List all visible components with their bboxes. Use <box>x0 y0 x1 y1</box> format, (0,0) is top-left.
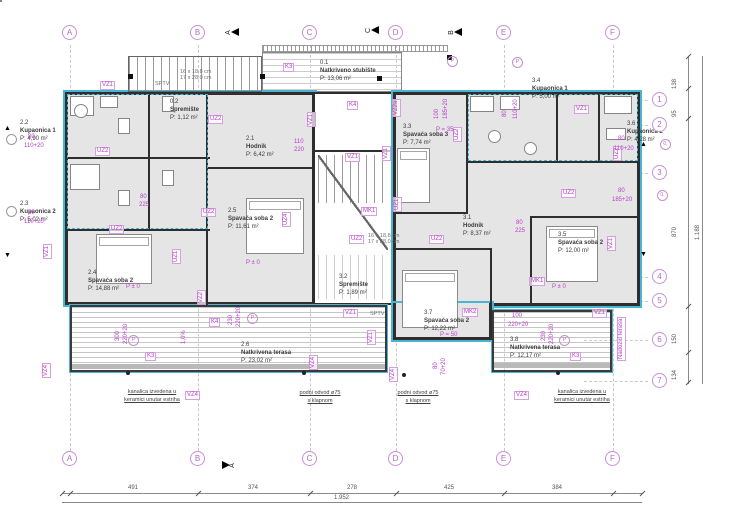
room-number: 2.4 <box>88 270 133 278</box>
grid-bubble-bottom-B: B <box>190 451 205 466</box>
wall <box>393 248 492 250</box>
tag-k3: K3 <box>283 63 294 72</box>
column-post <box>128 74 133 79</box>
dim-text: 80 <box>502 110 509 117</box>
room-name: Hodnik <box>463 223 491 231</box>
room-area: P: 7,74 m² <box>403 140 448 148</box>
toilet-fixture <box>118 118 130 134</box>
bed <box>397 148 430 203</box>
room-area: P: 12,00 m² <box>558 248 603 256</box>
dim-value: 491 <box>128 485 138 492</box>
floor-plan-canvas: AABBCCDDEEFF12345672.2Kupaonica 1P: 4,90… <box>0 0 748 512</box>
annotation-gray: 17 x 28,0 cm <box>368 239 400 245</box>
dim-tick <box>640 491 646 497</box>
dim-value: 138 <box>672 79 679 89</box>
dim-tick <box>686 380 692 386</box>
tag-vz1: VZ1 <box>343 309 358 318</box>
fan-symbol <box>74 104 88 118</box>
plan-note: podni odvod ø75s klapnom <box>398 389 439 406</box>
dim-text: 80 <box>433 362 440 369</box>
dim-chain-right-total-line <box>702 56 703 384</box>
room-label-2.6: 2.6Natkrivena terasaP: 23,02 m² <box>241 342 291 365</box>
terrace-right-edge <box>494 363 610 368</box>
column-post <box>377 76 382 81</box>
tag-vz1: VZ1 <box>592 309 607 318</box>
note-line: keramici unutar estriha <box>124 396 180 404</box>
dim-chain-right-line <box>688 56 689 384</box>
dim-text: 230 <box>228 315 235 325</box>
grid-bubble-bottom-E: E <box>496 451 511 466</box>
section-letter: A <box>229 463 236 468</box>
tag-uz2: UZ2 <box>201 208 216 217</box>
room-label-3.4: 3.4Kupaonica 1P: 5,00 m² <box>532 78 568 101</box>
room-name: Kupaonica 2 <box>20 209 56 217</box>
dim-text: 225 <box>139 202 149 209</box>
tag-vz1: VZ1 <box>43 244 52 259</box>
reference-circle: 0, <box>660 139 671 150</box>
dim-text: 70+20 <box>441 358 448 375</box>
section-marker-A: A <box>226 28 239 36</box>
room-number: 0.2 <box>170 99 199 107</box>
dim-chain-bottom-line <box>62 493 642 494</box>
room-name: Natkrivena terasa <box>241 350 291 358</box>
dim-text: 100 <box>512 313 522 320</box>
room-label-2.5: 2.5Spavaća soba 2P: 11,61 m² <box>228 208 273 231</box>
reference-circle <box>6 206 17 217</box>
sink-fixture <box>470 96 494 112</box>
annotation-gray: SPTV <box>155 81 169 87</box>
section-letter: B <box>448 30 455 35</box>
grid-bubble-bottom-D: D <box>388 451 403 466</box>
room-area: P: 13,06 m² <box>320 76 376 84</box>
room-number: 2.6 <box>241 342 291 350</box>
grid-bubble-bottom-C: C <box>302 451 317 466</box>
dim-text: 230 <box>541 331 548 341</box>
plan-note: kanalica izvedena ukeramici unutar estri… <box>554 388 610 405</box>
room-area: P: 6,42 m² <box>246 152 274 160</box>
dim-value: 425 <box>444 485 454 492</box>
shower-fixture <box>70 164 100 190</box>
toilet-fixture <box>118 190 130 206</box>
tag-k3: K3 <box>570 352 581 361</box>
tag-mk1: MK1 <box>529 277 545 286</box>
dim-text: 110+20 <box>24 219 44 226</box>
annotation-gray: 17 x 28,0 cm <box>180 75 212 81</box>
section-marker-A: A <box>222 461 235 469</box>
tag-uz2: UZ2 <box>429 235 444 244</box>
dim-text: 80 <box>140 194 147 201</box>
annotation-gray: SPTV <box>370 311 384 317</box>
drain-point <box>302 371 306 375</box>
dim-text: P = 35 <box>436 127 453 134</box>
room-label-2.2: 2.2Kupaonica 1P: 4,90 m² <box>20 120 56 143</box>
dim-text: 1,0% <box>181 330 188 344</box>
dim-value: 134 <box>672 370 679 380</box>
room-number: 2.1 <box>246 136 274 144</box>
grid-bubble-top-F: F <box>605 25 620 40</box>
reference-circle: P <box>447 56 458 67</box>
sink-fixture <box>100 96 118 108</box>
room-name: Natkrivena terasa <box>510 345 560 353</box>
grid-bubble-row-2: 2 <box>652 117 667 132</box>
dim-text: 80 <box>28 134 35 141</box>
room-area: P: 12,17 m² <box>510 353 560 361</box>
dim-text: 110+20 <box>24 143 44 150</box>
reference-circle: P <box>128 335 139 346</box>
room-name: Spavaća soba 2 <box>424 318 469 326</box>
drain-point <box>402 373 406 377</box>
note-line: kanalica izvedena u <box>554 388 610 396</box>
dim-text: 185+20 <box>443 99 450 119</box>
note-line: podni odvod ø75 <box>398 389 439 397</box>
room-label-3.5: 3.5Spavaća soba 2P: 12,00 m² <box>558 232 603 255</box>
level-marker: ▼ <box>4 252 11 259</box>
tag-vz4: VZ4 <box>514 391 529 400</box>
tag-vz1: VZ1 <box>100 81 115 90</box>
room-name: Spremište <box>170 107 199 115</box>
room-number: 2.2 <box>20 120 56 128</box>
grid-bubble-top-D: D <box>388 25 403 40</box>
grid-bubble-top-A: A <box>62 25 77 40</box>
room-area: P: 8,37 m² <box>463 231 491 239</box>
reference-circle: P <box>559 335 570 346</box>
grid-bubble-row-7: 7 <box>652 373 667 388</box>
room-name: Spavaća soba 2 <box>558 240 603 248</box>
room-number: 0.1 <box>320 60 376 68</box>
dim-value: 384 <box>552 485 562 492</box>
row-line-7 <box>584 381 648 382</box>
room-number: 3.1 <box>463 215 491 223</box>
tag-uz4: UZ4 <box>282 212 291 227</box>
reference-circle: P <box>512 57 523 68</box>
dim-text: P ± 0 <box>126 284 140 291</box>
tag-vz1: VZ1 <box>367 330 376 345</box>
room-name: Hodnik <box>246 144 274 152</box>
dim-text: P ± 0 <box>552 284 566 291</box>
dim-value: 95 <box>672 110 679 117</box>
fan-symbol <box>488 130 501 143</box>
pillow <box>400 151 427 160</box>
wall <box>65 229 210 231</box>
grid-bubble-row-5: 5 <box>652 293 667 308</box>
room-label-2.1: 2.1HodnikP: 6,42 m² <box>246 136 274 159</box>
room-number: 3.5 <box>558 232 603 240</box>
dim-value: 870 <box>672 227 679 237</box>
pillow <box>99 237 149 246</box>
room-number: 2.3 <box>20 201 56 209</box>
dim-text: 225 <box>515 228 525 235</box>
plan-note: kanalica izvedena ukeramici unutar estri… <box>124 388 180 405</box>
room-name: Kupaonica 1 <box>532 86 568 94</box>
drain-point <box>556 371 560 375</box>
dim-text: 80 <box>618 136 625 143</box>
fan-symbol <box>524 142 537 155</box>
grid-bubble-top-B: B <box>190 25 205 40</box>
formwork-tick-band <box>262 45 448 52</box>
room-label-3.1: 3.1HodnikP: 8,37 m² <box>463 215 491 238</box>
room-label-3.2: 3.2SpremišteP: 1,89 m² <box>339 274 368 297</box>
grid-bubble-bottom-F: F <box>605 451 620 466</box>
wall <box>206 167 315 169</box>
note-line: kanalica izvedena u <box>124 388 180 396</box>
tag-uz2: UZ2 <box>95 147 110 156</box>
tag-k4: K4 <box>347 101 358 110</box>
toilet-fixture <box>162 170 174 186</box>
tag-uz2: UZ2 <box>109 225 124 234</box>
dim-chain-bottom-total-line <box>62 502 642 503</box>
dim-text: 220+20 <box>508 322 528 329</box>
room-label-0.1: 0.1Natkriveno stubišteP: 13,06 m² <box>320 60 376 83</box>
tag-k3: K3 <box>145 352 156 361</box>
tag-vz1: VZ1 <box>607 236 616 251</box>
column-post <box>260 74 265 79</box>
tag-vz1: VZ1 <box>382 146 391 161</box>
note-line: s klapnom <box>398 397 439 405</box>
grid-bubble-bottom-A: A <box>62 451 77 466</box>
tag-uz2: UZ2 <box>561 189 576 198</box>
dim-text: 220+20 <box>549 324 556 344</box>
section-letter: A <box>225 30 232 35</box>
tag-vz1: VZ1 <box>574 105 589 114</box>
dim-text: 100 <box>434 109 441 119</box>
tag-vz4: VZ4 <box>42 363 51 378</box>
tag-vz4: VZ4 <box>185 391 200 400</box>
room-area: P: 1,89 m² <box>339 290 368 298</box>
tag-uz1: UZ1 <box>393 197 402 212</box>
room-area: P: 23,02 m² <box>241 358 291 366</box>
section-arrow-icon <box>454 28 462 36</box>
grid-bubble-row-6: 6 <box>652 332 667 347</box>
wall <box>530 216 640 218</box>
room-label-0.2: 0.2SpremišteP: 1,12 m² <box>170 99 199 122</box>
dim-text: 185+20 <box>612 197 632 204</box>
tag-uz2: UZ2 <box>453 127 462 142</box>
tag-uz2: UZ2 <box>208 115 223 124</box>
tag-mk1: MK1 <box>361 207 377 216</box>
tag-vz1: VZ1 <box>307 112 316 127</box>
dim-text: 110 <box>294 139 304 146</box>
dim-text: 220+20 <box>236 307 243 327</box>
dim-text: 110+20 <box>614 146 634 153</box>
plan-note: podni odvod ø75s klapnom <box>300 389 341 406</box>
level-marker: ▲ <box>4 125 11 132</box>
section-marker-C: C <box>366 26 379 34</box>
drain-point <box>126 371 130 375</box>
section-letter: C <box>365 27 372 32</box>
grid-bubble-row-1: 1 <box>652 92 667 107</box>
grid-bubble-row-4: 4 <box>652 269 667 284</box>
tag-vz1: VZ1 <box>345 153 360 162</box>
reference-circle <box>6 134 17 145</box>
tag-vz2: VZ2 <box>197 290 206 305</box>
level-marker: ▲ <box>640 141 647 148</box>
dim-total: 1.188 <box>695 225 702 240</box>
level-marker: ▼ <box>640 251 647 258</box>
section-arrow-icon <box>231 28 239 36</box>
tag-uz1: UZ1 <box>172 249 181 264</box>
room-name: Spremište <box>339 282 368 290</box>
note-line: s klapnom <box>300 397 341 405</box>
room-name: Kupaonica 1 <box>20 128 56 136</box>
terrace-left-edge <box>72 364 385 369</box>
room-area: P: 1,12 m² <box>170 115 199 123</box>
section-arrow-icon <box>371 26 379 34</box>
dim-text: 80 <box>516 220 523 227</box>
tag-nadozid-terasa: Nadozid terasa <box>617 317 626 361</box>
tag-mk2: MK2 <box>462 308 478 317</box>
dim-text: 80 <box>28 210 35 217</box>
tag-uz2: UZ2 <box>349 235 364 244</box>
reference-circle: 0, <box>657 190 668 201</box>
dim-text: 110+20 <box>513 99 520 119</box>
grid-bubble-top-C: C <box>302 25 317 40</box>
room-number: 3.4 <box>532 78 568 86</box>
dim-text: P ± 0 <box>246 260 260 267</box>
room-name: Natkriveno stubište <box>320 68 376 76</box>
tag-vz4: VZ4 <box>309 355 318 370</box>
tag-vz4: VZ4 <box>389 367 398 382</box>
section-marker-B: B <box>449 28 462 36</box>
note-line: podni odvod ø75 <box>300 389 341 397</box>
grid-bubble-top-E: E <box>496 25 511 40</box>
pillow <box>405 273 455 282</box>
room-area: P: 11,61 m² <box>228 224 273 232</box>
dim-text: 300 <box>115 331 122 341</box>
wall <box>490 248 492 340</box>
dim-total: 1.952 <box>334 495 349 502</box>
dim-value: 278 <box>347 485 357 492</box>
grid-bubble-row-3: 3 <box>652 165 667 180</box>
room-area: P: 5,00 m² <box>532 94 568 102</box>
dim-value: 150 <box>672 334 679 344</box>
wall <box>466 161 640 163</box>
dim-value: 374 <box>248 485 258 492</box>
shower-fixture <box>604 96 632 114</box>
dim-text: P = 50 <box>440 332 457 339</box>
room-name: Spavaća soba 2 <box>228 216 273 224</box>
note-line: keramici unutar estriha <box>554 396 610 404</box>
tag-vz2a: VZ2a <box>392 99 401 117</box>
wall <box>393 212 468 214</box>
reference-circle: P <box>247 313 258 324</box>
room-number: 3.2 <box>339 274 368 282</box>
wall <box>530 216 532 306</box>
room-number: 2.5 <box>228 208 273 216</box>
dim-text: 220 <box>294 147 304 154</box>
tag-k4: K4 <box>209 318 220 327</box>
toilet-fixture <box>0 0 2 2</box>
dim-text: 80 <box>618 188 625 195</box>
